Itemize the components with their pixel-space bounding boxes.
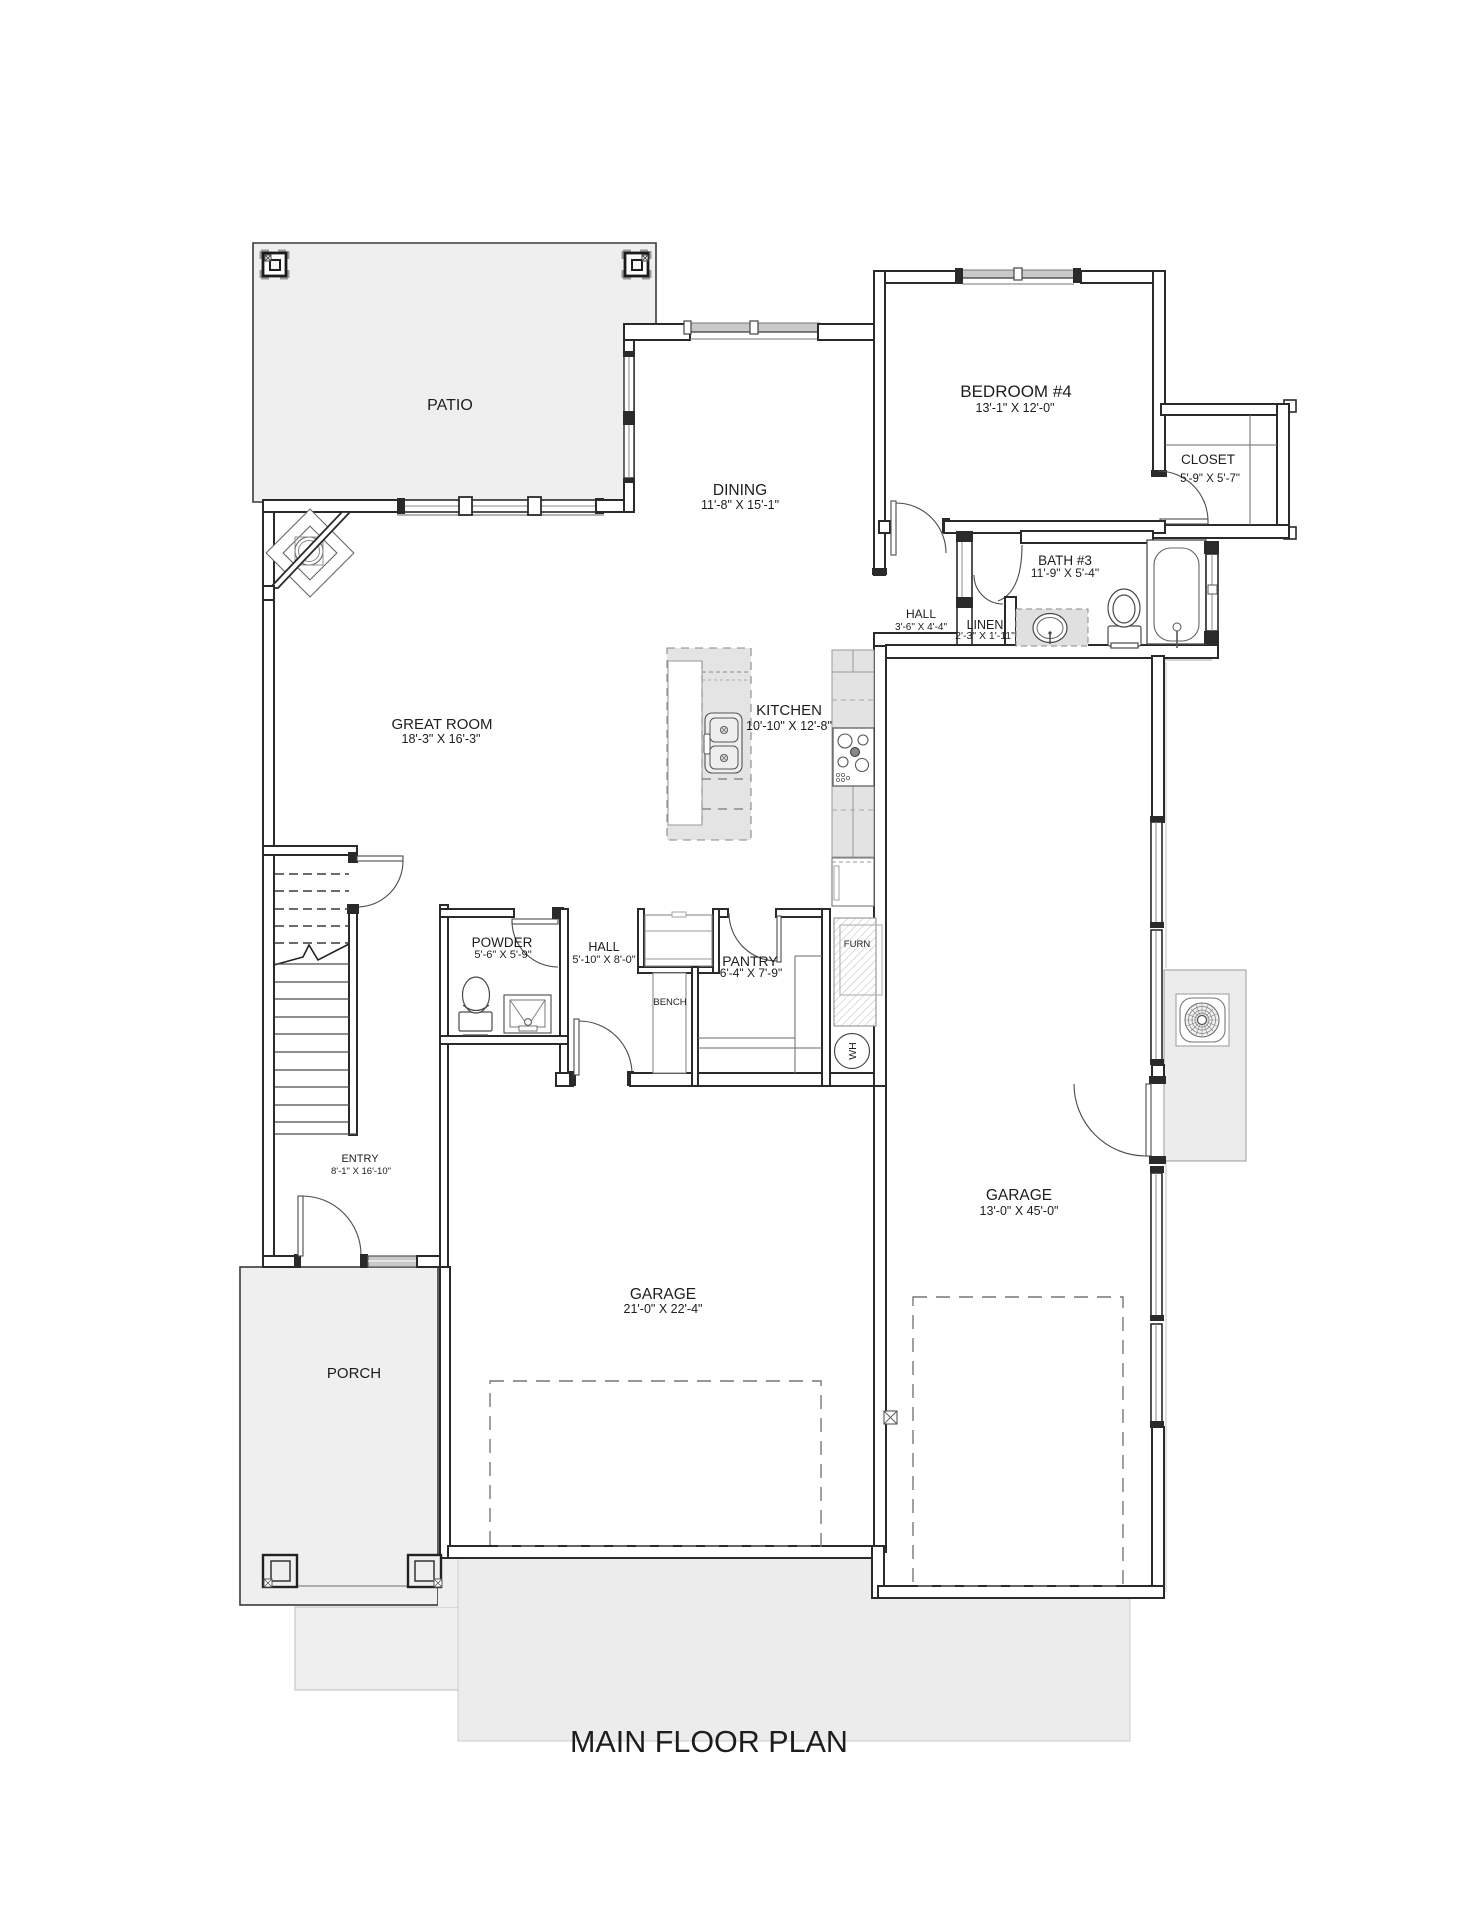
svg-text:5'-9" X 5'-7": 5'-9" X 5'-7" xyxy=(1180,473,1240,485)
svg-text:POWDER: POWDER xyxy=(472,935,533,950)
svg-text:18'-3" X 16'-3": 18'-3" X 16'-3" xyxy=(402,732,481,746)
svg-text:6'-4" X 7'-9": 6'-4" X 7'-9" xyxy=(720,966,782,980)
svg-text:11'-8" X 15'-1": 11'-8" X 15'-1" xyxy=(701,498,779,512)
svg-text:PORCH: PORCH xyxy=(327,1365,381,1382)
svg-text:HALL: HALL xyxy=(906,607,936,621)
svg-text:DINING: DINING xyxy=(713,482,767,499)
svg-text:CLOSET: CLOSET xyxy=(1181,452,1235,467)
svg-text:10'-10" X 12'-8": 10'-10" X 12'-8" xyxy=(746,719,832,733)
svg-text:5'-6" X 5'-9": 5'-6" X 5'-9" xyxy=(474,949,531,961)
svg-text:11'-9" X 5'-4": 11'-9" X 5'-4" xyxy=(1031,566,1099,580)
svg-text:FURN: FURN xyxy=(844,939,871,950)
svg-text:PATIO: PATIO xyxy=(427,397,473,414)
svg-text:MAIN FLOOR PLAN: MAIN FLOOR PLAN xyxy=(570,1725,848,1759)
svg-text:HALL: HALL xyxy=(588,940,619,954)
svg-text:13'-1" X 12'-0": 13'-1" X 12'-0" xyxy=(976,401,1055,415)
svg-text:5'-10" X 8'-0": 5'-10" X 8'-0" xyxy=(572,954,635,966)
svg-text:8'-1" X 16'-10": 8'-1" X 16'-10" xyxy=(331,1166,391,1177)
svg-text:BEDROOM #4: BEDROOM #4 xyxy=(960,382,1071,401)
svg-text:2'-3" X 1'-11": 2'-3" X 1'-11" xyxy=(955,630,1015,642)
svg-text:GARAGE: GARAGE xyxy=(986,1187,1052,1204)
svg-text:KITCHEN: KITCHEN xyxy=(756,702,822,719)
svg-text:BENCH: BENCH xyxy=(653,997,686,1008)
svg-text:21'-0" X 22'-4": 21'-0" X 22'-4" xyxy=(624,1302,703,1316)
svg-text:13'-0" X 45'-0": 13'-0" X 45'-0" xyxy=(980,1204,1059,1218)
svg-text:WH: WH xyxy=(847,1042,859,1060)
svg-text:3'-6" X 4'-4": 3'-6" X 4'-4" xyxy=(895,622,948,633)
svg-text:GARAGE: GARAGE xyxy=(630,1286,696,1303)
svg-text:GREAT ROOM: GREAT ROOM xyxy=(391,716,492,733)
svg-text:ENTRY: ENTRY xyxy=(341,1153,379,1165)
